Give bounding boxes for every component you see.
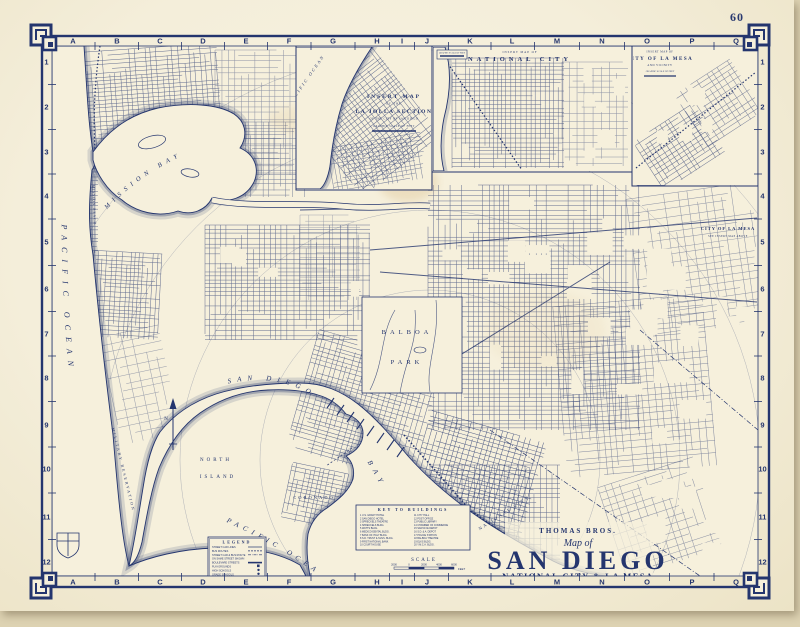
grid-letter-top: B <box>114 37 120 46</box>
grid-number-left: 7 <box>44 330 48 339</box>
grid-number-left: 10 <box>42 465 50 474</box>
legend-item-label: HIGH SCHOOLS <box>212 569 232 572</box>
insert-la-mesa: INSERT MAP OFCITY OF LA MESAAND VICINITY… <box>627 47 764 191</box>
lm-title-2: CITY OF LA MESA <box>627 57 693 62</box>
grid-number-right: 2 <box>760 103 764 112</box>
scale-tick: 2000 <box>391 563 397 567</box>
legend-item-label: BOULEVARD STREETS <box>212 562 240 565</box>
grid-number-left: 3 <box>44 148 48 157</box>
lj-title-4: OF THE CITY OF SAN DIEGO <box>370 118 419 121</box>
grid-letter-bottom: J <box>425 578 429 587</box>
nc-title-1: INSERT MAP OF <box>503 50 538 54</box>
key-title: KEY TO BUILDINGS <box>378 507 449 512</box>
grid-letter-bottom: H <box>374 578 379 587</box>
park-label: PARK <box>391 359 424 366</box>
grid-letter-top: F <box>287 37 292 46</box>
lm-scale-note: GRAPHIC SCALE OF FEET <box>646 70 675 73</box>
grid-letter-bottom: E <box>243 578 248 587</box>
map-canvas: PACIFIC OCEANPACIFIC OCEANMISSION BAYSAN… <box>0 0 800 627</box>
legend-item-label: BUS ROUTES <box>212 550 229 553</box>
lj-title-2: OF THE <box>386 103 402 106</box>
greek-key-corner <box>31 25 56 50</box>
grid-number-left: 12 <box>42 558 50 567</box>
grid-letter-bottom: I <box>401 578 403 587</box>
grid-letter-bottom: L <box>510 578 515 587</box>
grid-number-right: 8 <box>760 374 764 383</box>
grid-number-right: 3 <box>760 148 764 157</box>
grid-letter-top: L <box>510 37 515 46</box>
publisher-label: THOMAS BROS. <box>539 527 617 535</box>
legend-box: LEGENDSTREET CAR LINESBUS ROUTESSTREET C… <box>208 537 266 585</box>
scale-label: SCALE <box>411 558 437 563</box>
north-island-label-2: ISLAND <box>200 475 236 480</box>
insert-national-city: GRAPHIC SCALE OF FEETINSERT MAP OFNATION… <box>433 47 631 171</box>
grid-letter-bottom: D <box>200 578 206 587</box>
see-insert-label: SEE INSERT MAP ABOVE <box>708 235 748 238</box>
grid-letter-bottom: K <box>467 578 473 587</box>
legend-item-label: PLAYGROUNDS <box>212 566 231 569</box>
key-to-buildings-box: KEY TO BUILDINGS1 U.S. GRANT HOTEL2 SAN … <box>356 505 470 550</box>
key-item: 20 Y.M.C.A. BLDG. <box>414 544 435 547</box>
grid-letter-top: Q <box>733 37 739 46</box>
grid-number-left: 8 <box>44 374 48 383</box>
grid-number-left: 2 <box>44 103 48 112</box>
legend-item-label: LIBRARIES <box>212 577 225 580</box>
legend-item-label: STREET CAR & BUS ROUTE <box>212 554 246 557</box>
grid-letter-top: G <box>330 37 336 46</box>
grid-number-right: 11 <box>759 513 767 522</box>
grid-letter-top: M <box>554 37 560 46</box>
nc-scale-note: GRAPHIC SCALE OF FEET <box>439 51 466 54</box>
grid-number-right: 9 <box>760 421 764 430</box>
north-island-label-1: NORTH <box>200 458 232 463</box>
lm-title-3: AND VICINITY <box>647 64 672 67</box>
balboa-label: BALBOA <box>382 329 433 336</box>
grid-number-left: 5 <box>44 238 48 247</box>
grid-letter-top: I <box>401 37 403 46</box>
grid-number-left: 6 <box>44 285 48 294</box>
grid-number-right: 4 <box>760 192 765 201</box>
grid-number-right: 6 <box>760 285 764 294</box>
grid-letter-bottom: G <box>330 578 336 587</box>
grid-number-left: 1 <box>44 58 48 67</box>
grid-number-right: 5 <box>760 238 764 247</box>
greek-key-corner <box>744 25 769 50</box>
scale-tick: 4000 <box>436 563 442 567</box>
greek-key-corner <box>31 573 56 598</box>
grid-letter-bottom: Q <box>733 578 739 587</box>
grid-letter-bottom: O <box>644 578 650 587</box>
map-content: PACIFIC OCEANPACIFIC OCEANMISSION BAYSAN… <box>0 0 800 627</box>
grid-letter-top: P <box>689 37 694 46</box>
grid-letter-bottom: A <box>70 578 76 587</box>
lj-title-3: LA JOLLA SECTION <box>356 109 433 115</box>
greek-key-corner <box>744 573 769 598</box>
grid-letter-top: A <box>70 37 76 46</box>
grid-letter-top: C <box>157 37 163 46</box>
title-block: THOMAS BROS.Map ofSAN DIEGONATIONAL CITY… <box>487 522 668 584</box>
scale-tick: 2000 <box>421 563 427 567</box>
city-of-la-mesa-label: CITY OF LA MESA <box>701 226 756 231</box>
grid-number-right: 10 <box>758 465 766 474</box>
legend-item-label: FIRE STATIONS <box>212 581 231 584</box>
grid-letter-top: O <box>644 37 650 46</box>
north-arrow-n: N <box>164 417 168 422</box>
copyright-label: COPYRIGHT BY THOMAS BROS. <box>86 583 131 586</box>
scale-tick: 6000 <box>451 563 457 567</box>
insert-la-jolla: PACIFIC OCEANINSERT MAPOF THELA JOLLA SE… <box>287 47 442 197</box>
grid-letter-bottom: F <box>287 578 292 587</box>
grid-letter-bottom: N <box>599 578 604 587</box>
legend-item-label: STREET CAR LINES <box>212 546 236 549</box>
grid-letter-top: D <box>200 37 206 46</box>
key-item: 10 COURT HOUSE <box>360 544 381 547</box>
grid-letter-bottom: C <box>157 578 163 587</box>
coronado-label: CORONADO <box>293 495 335 500</box>
grid-number-right: 7 <box>760 330 764 339</box>
grid-letter-bottom: M <box>554 578 560 587</box>
nc-title-2: NATIONAL CITY <box>468 56 572 63</box>
legend-title: LEGEND <box>223 540 252 545</box>
grid-letter-top: N <box>599 37 604 46</box>
grid-letter-top: J <box>425 37 429 46</box>
grid-letter-top: H <box>374 37 379 46</box>
legend-item-label: ON SAME STREET SHOWN <box>212 558 245 561</box>
grid-letter-top: E <box>243 37 248 46</box>
grid-number-left: 9 <box>44 421 48 430</box>
map-sheet-page: 60 PACIFIC OCEANPACIFIC OCEANMISSION BAY… <box>0 0 800 627</box>
grid-letter-top: K <box>467 37 473 46</box>
grid-number-right: 1 <box>760 58 764 67</box>
grid-number-left: 4 <box>44 192 49 201</box>
grid-number-right: 12 <box>758 558 766 567</box>
grid-number-left: 11 <box>43 513 51 522</box>
lj-scale-note: GRAPHIC SCALE OF FEET <box>373 125 415 128</box>
grid-letter-bottom: B <box>114 578 120 587</box>
grid-letter-bottom: P <box>689 578 694 587</box>
scale-unit: FEET <box>458 567 465 571</box>
lj-title-1: INSERT MAP <box>367 94 421 100</box>
lm-title-1: INSERT MAP OF <box>646 51 673 54</box>
